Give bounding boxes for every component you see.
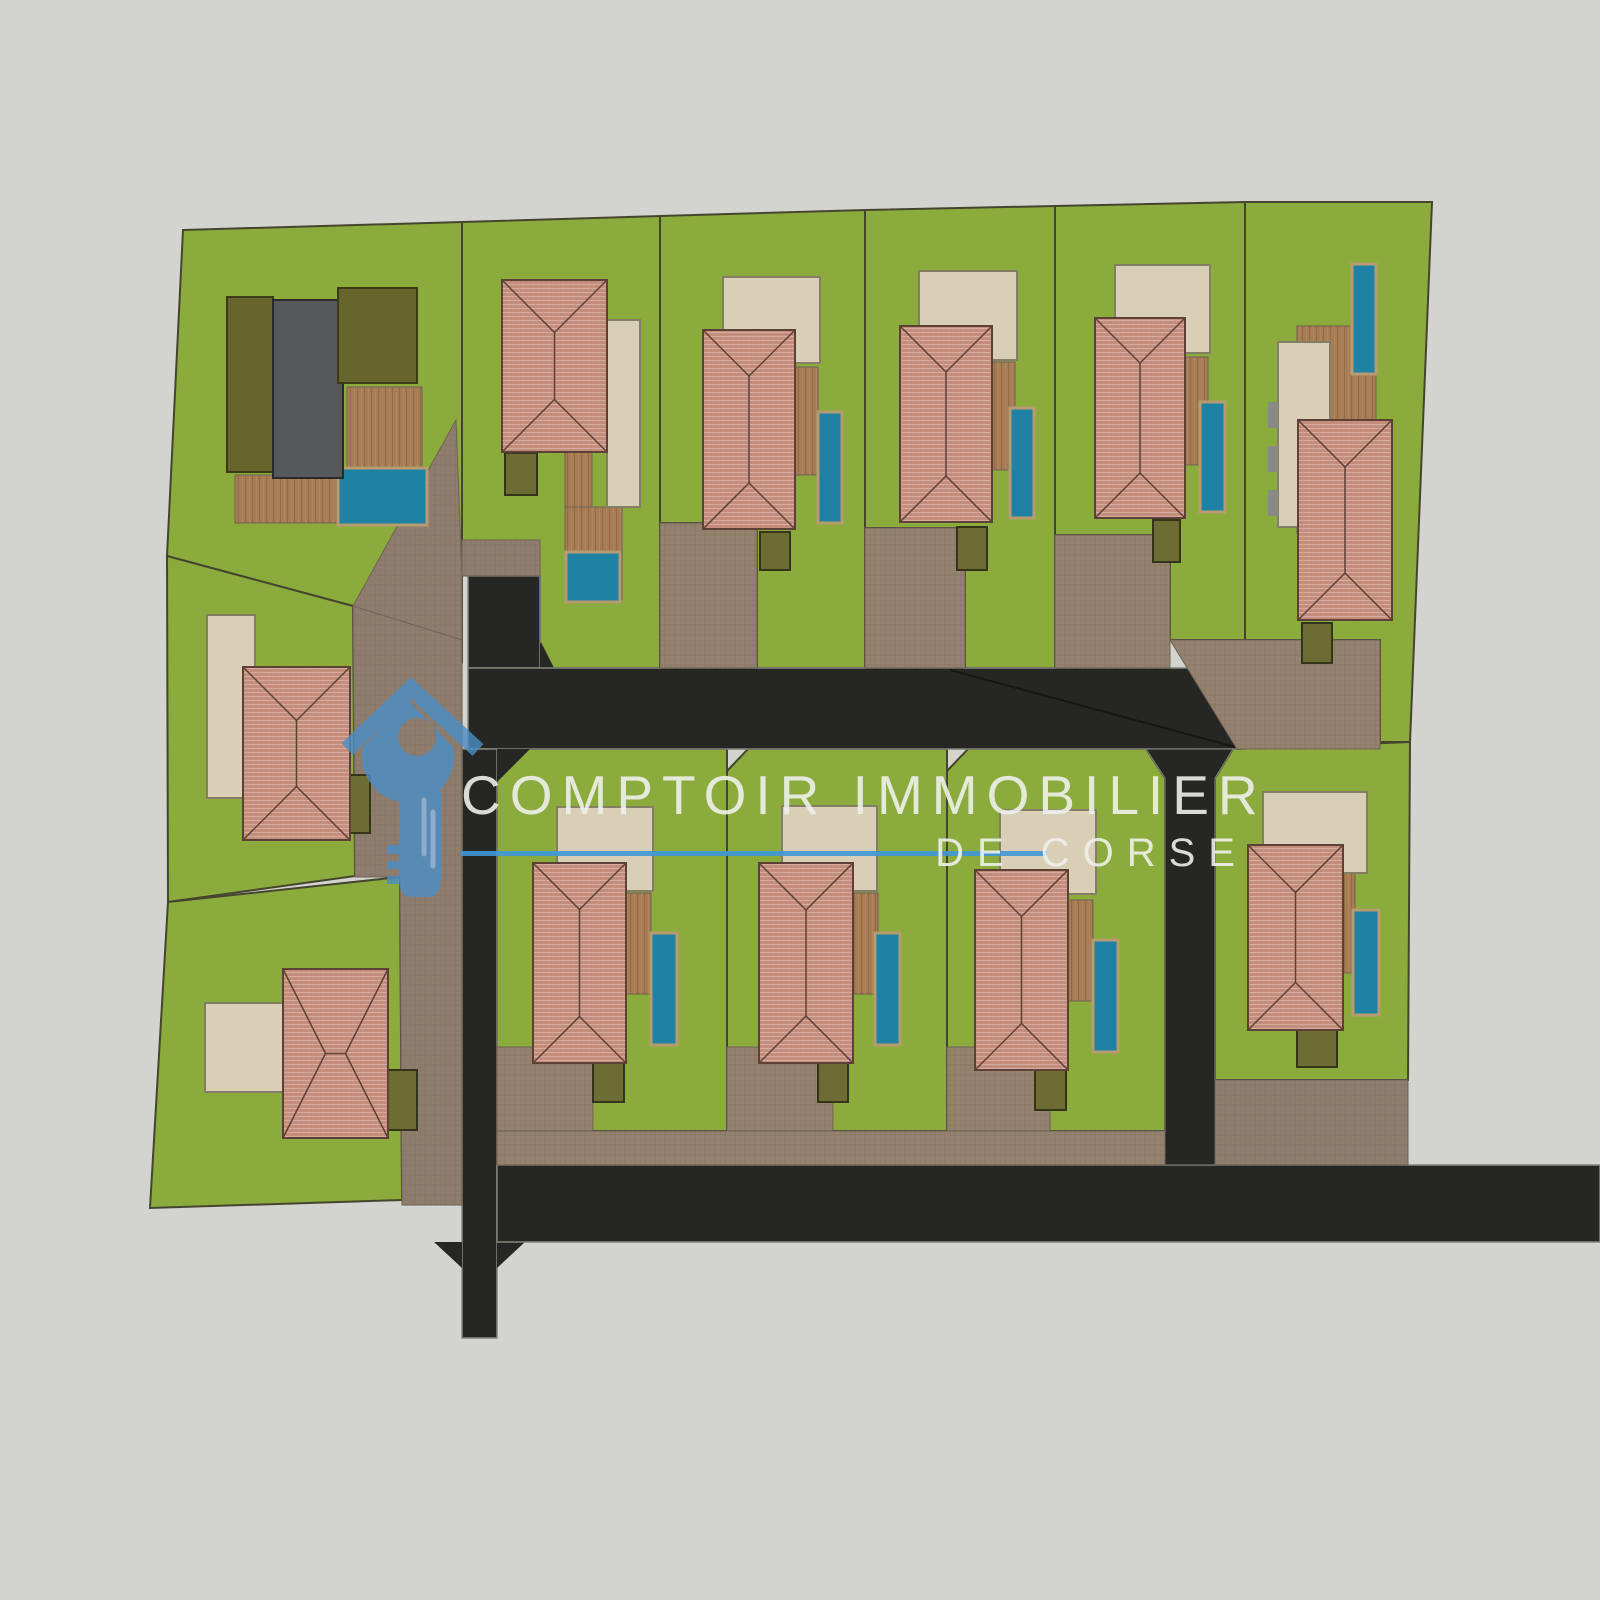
house-lot2 xyxy=(502,280,607,452)
patio-lot6-step-1 xyxy=(1268,402,1278,428)
house-b4 xyxy=(1248,845,1343,1030)
shed-lot4 xyxy=(957,527,987,570)
house-lot12 xyxy=(243,667,350,840)
pool-b1 xyxy=(651,933,677,1045)
deck-b1 xyxy=(626,893,651,994)
shed-b1 xyxy=(593,1062,624,1102)
house-b2 xyxy=(759,863,853,1063)
house-lot6 xyxy=(1298,420,1392,620)
pool-b4 xyxy=(1353,910,1379,1015)
road-south xyxy=(497,1165,1600,1242)
pool-lot2 xyxy=(566,552,620,602)
road-flare-sw xyxy=(434,1242,462,1268)
house-b1 xyxy=(533,863,626,1063)
shed-lot12 xyxy=(349,775,370,833)
shed-lot6 xyxy=(1302,623,1332,663)
driveway-lot2 xyxy=(462,540,540,576)
pool-lot4 xyxy=(1010,408,1034,518)
building-lot1-olive-west xyxy=(227,297,273,472)
pool-lot6 xyxy=(1352,264,1376,374)
house-lot5 xyxy=(1095,318,1185,518)
shed-b3 xyxy=(1035,1070,1066,1110)
shed-lot13 xyxy=(388,1070,417,1130)
shed-b2 xyxy=(818,1063,848,1102)
shed-lot2 xyxy=(505,453,537,495)
shed-lot5 xyxy=(1153,520,1180,562)
pool-lot5 xyxy=(1200,402,1225,512)
patio-lot6-step-3 xyxy=(1268,490,1278,516)
deck-lot2-a xyxy=(565,452,592,509)
logo-key-teeth xyxy=(387,845,399,884)
shed-lot3 xyxy=(760,532,790,570)
house-b3 xyxy=(975,870,1068,1070)
building-lot1-gray-core xyxy=(273,300,343,478)
house-lot3 xyxy=(703,330,795,529)
road-stem-lower xyxy=(462,749,497,1338)
deck-lot1-east xyxy=(347,387,422,467)
pool-lot3 xyxy=(818,412,842,523)
patio-lot2 xyxy=(607,320,640,507)
patio-lot13 xyxy=(205,1003,283,1092)
pool-lot1 xyxy=(338,468,427,525)
site-plan: COMPTOIR IMMOBILIER DE CORSE xyxy=(0,0,1600,1600)
road-stem-upper xyxy=(468,576,540,668)
house-lot13 xyxy=(283,969,388,1138)
pool-b3 xyxy=(1093,940,1118,1052)
driveway-south-band xyxy=(497,1131,1165,1165)
pool-b2 xyxy=(875,933,900,1045)
watermark-title: COMPTOIR IMMOBILIER xyxy=(461,763,1267,827)
deck-lot1-south xyxy=(235,475,338,523)
building-lot1-olive-east xyxy=(338,288,417,383)
patio-lot6-step-2 xyxy=(1268,446,1278,472)
shed-b4 xyxy=(1297,1030,1337,1067)
driveway-lot3 xyxy=(660,523,757,668)
deck-lot3 xyxy=(795,367,818,475)
road-flare-se xyxy=(497,1242,525,1268)
house-lot4 xyxy=(900,326,992,522)
driveway-b4 xyxy=(1215,1080,1408,1165)
road-main xyxy=(468,668,1237,749)
driveway-lot4 xyxy=(865,528,965,668)
watermark-subtitle: DE CORSE xyxy=(935,831,1248,876)
deck-b3 xyxy=(1068,900,1093,1001)
